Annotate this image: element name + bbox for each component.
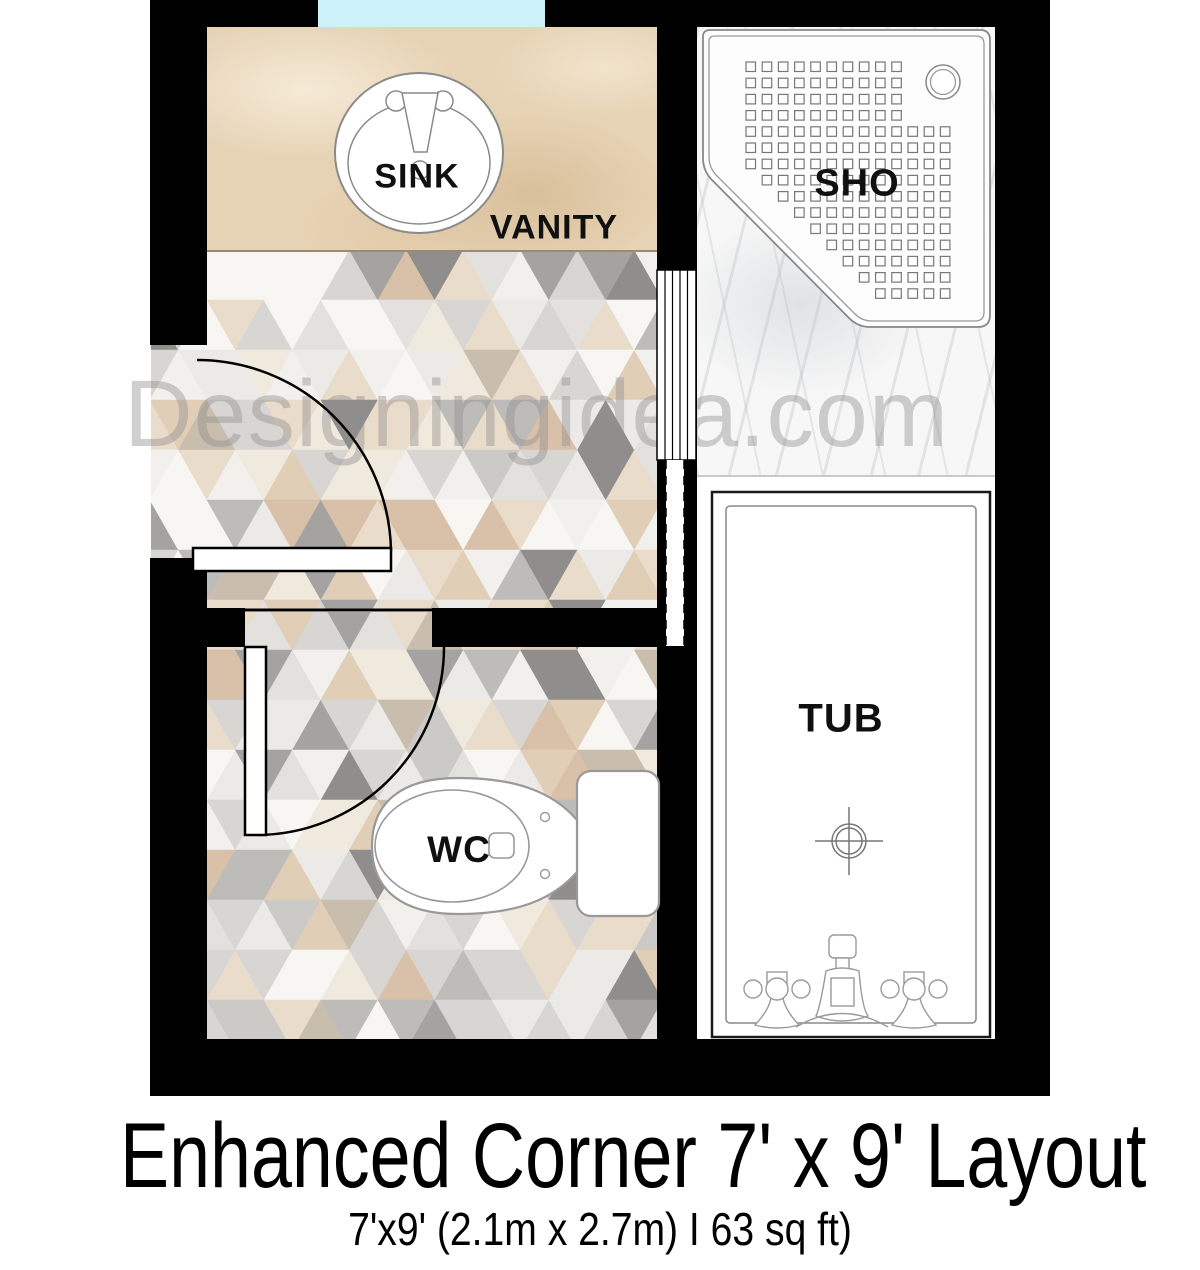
- shower-label: SHO: [814, 163, 899, 206]
- floor-plan-page: Designingidea.com: [0, 0, 1200, 1270]
- fixtures-layer: [0, 0, 1200, 1270]
- toilet-tank: [577, 771, 659, 916]
- tub: [712, 492, 990, 1037]
- toilet-flush-button: [489, 833, 514, 858]
- wall-opening-dashed: [666, 460, 684, 646]
- main-door: [193, 360, 391, 571]
- sink-label: SINK: [374, 158, 459, 197]
- tub-label: TUB: [798, 697, 883, 742]
- vanity-label: VANITY: [490, 209, 618, 248]
- toilet-label: WC: [427, 829, 491, 871]
- toilet: [372, 771, 659, 916]
- sink: [335, 73, 503, 233]
- wall-opening-track: [657, 270, 696, 460]
